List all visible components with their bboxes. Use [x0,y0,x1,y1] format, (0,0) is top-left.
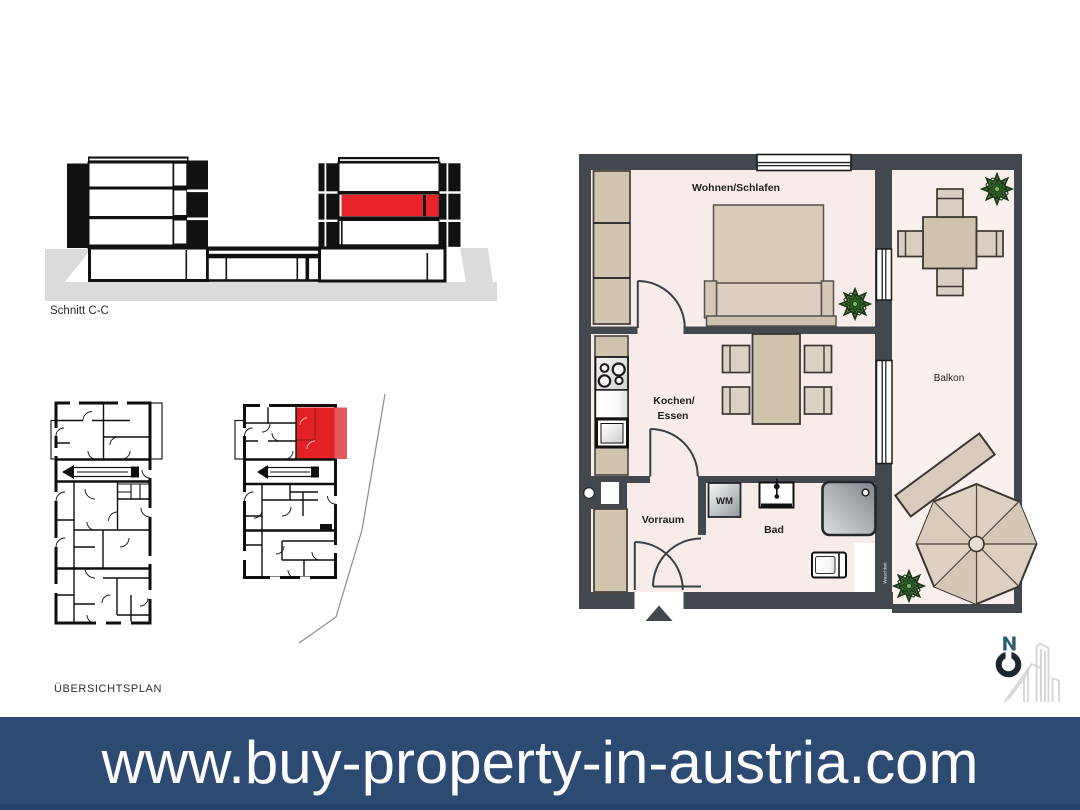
svg-text:WM: WM [716,496,733,507]
svg-text:Wohnen/Schlafen: Wohnen/Schlafen [692,182,780,194]
svg-text:ÜBERSICHTSPLAN: ÜBERSICHTSPLAN [54,683,162,695]
svg-text:Kochen/: Kochen/ [653,395,695,407]
svg-text:www.buy-property-in-austria.co: www.buy-property-in-austria.com [101,729,979,796]
svg-text:Balkon: Balkon [934,373,965,384]
svg-text:Essen: Essen [658,410,689,422]
svg-text:Vorraum: Vorraum [642,514,684,526]
svg-text:Waschbet.: Waschbet. [883,561,889,583]
svg-text:Schnitt C-C: Schnitt C-C [50,305,109,317]
svg-text:Bad: Bad [764,524,784,536]
